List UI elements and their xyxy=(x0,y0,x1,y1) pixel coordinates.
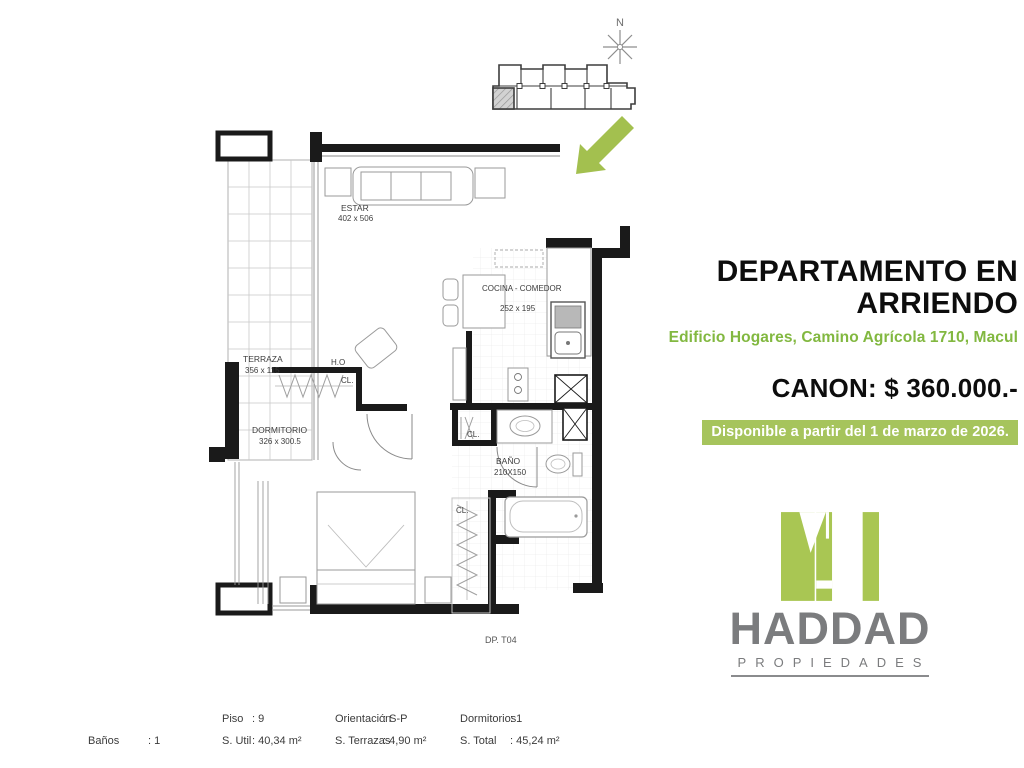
spec-banos-value: : 1 xyxy=(148,735,160,747)
room-dims-estar: 402 x 506 xyxy=(338,214,374,223)
spec-s-terrazas-label: S. Terrazas xyxy=(335,730,383,752)
spec-s-terrazas-value: : 4,90 m² xyxy=(383,735,426,747)
agency-name: HADDAD xyxy=(730,606,931,651)
room-label-terraza: TERRAZA xyxy=(243,354,283,364)
floorplan-drawing: ESTAR 402 x 506 TERRAZA 356 x 115 DORMIT… xyxy=(195,115,650,690)
logo-divider xyxy=(731,675,929,677)
agency-tagline: PROPIEDADES xyxy=(738,655,931,670)
spec-piso-label: Piso xyxy=(222,708,252,730)
spec-s-util-label: S. Util xyxy=(222,730,252,752)
chair xyxy=(443,305,458,326)
availability-badge: Disponible a partir del 1 de marzo de 20… xyxy=(702,420,1018,445)
spec-s-util-value: : 40,34 m² xyxy=(252,735,302,747)
bed xyxy=(280,492,451,604)
specs-column-2: Piso: 9 S. Util: 40,34 m² xyxy=(222,708,302,752)
spec-s-total-label: S. Total xyxy=(460,730,510,752)
label-closet-2: CL. xyxy=(467,430,479,439)
tv-cabinet xyxy=(453,348,466,400)
dining-table xyxy=(463,275,505,328)
spec-dormitorios-value: : 1 xyxy=(510,713,522,725)
label-ho: H.O xyxy=(331,358,345,367)
listing-price: CANON: $ 360.000.- xyxy=(598,373,1018,404)
spec-piso-value: : 9 xyxy=(252,713,264,725)
spec-s-total: S. Total: 45,24 m² xyxy=(460,730,560,752)
spec-s-terrazas: S. Terrazas: 4,90 m² xyxy=(335,730,426,752)
nightstand xyxy=(425,577,451,603)
label-closet-3: CL. xyxy=(456,506,468,515)
toilet xyxy=(546,455,570,473)
specs-column-1: Baños: 1 xyxy=(88,708,160,752)
room-label-cocina: COCINA - COMEDOR xyxy=(482,284,562,293)
terraza-deck xyxy=(228,160,318,460)
room-label-dormitorio: DORMITORIO xyxy=(252,425,307,435)
haddad-logo-icon xyxy=(781,512,879,602)
specs-column-3: Orientación: S-P S. Terrazas: 4,90 m² xyxy=(335,708,426,752)
spec-dormitorios: Dormitorios: 1 xyxy=(460,708,560,730)
room-dims-dormitorio: 326 x 300.5 xyxy=(259,437,301,446)
column-top-left xyxy=(218,133,270,159)
cooktop xyxy=(508,368,528,401)
sofa xyxy=(325,167,505,205)
spec-banos: Baños: 1 xyxy=(88,730,160,752)
compass-center xyxy=(617,44,622,49)
unit-number-label: DP. T04 xyxy=(485,635,517,645)
footprint-highlighted-unit xyxy=(493,88,514,109)
specs-column-4: Dormitorios: 1 S. Total: 45,24 m² xyxy=(460,708,560,752)
spec-dormitorios-label: Dormitorios xyxy=(460,708,510,730)
room-dims-terraza: 356 x 115 xyxy=(245,366,280,375)
agency-logo: HADDAD PROPIEDADES xyxy=(700,512,960,677)
listing-address: Edificio Hogares, Camino Agrícola 1710, … xyxy=(598,329,1018,347)
room-label-estar: ESTAR xyxy=(341,203,369,213)
spec-orientacion-label: Orientación xyxy=(335,708,383,730)
spec-s-util: S. Util: 40,34 m² xyxy=(222,730,302,752)
listing-title-line1: DEPARTAMENTO EN xyxy=(598,256,1018,288)
room-dims-bano: 210X150 xyxy=(494,468,527,477)
room-label-bano: BAÑO xyxy=(496,456,520,466)
spec-s-total-value: : 45,24 m² xyxy=(510,735,560,747)
building-footprint-diagram xyxy=(487,57,639,115)
spec-piso: Piso: 9 xyxy=(222,708,302,730)
spec-banos-label: Baños xyxy=(88,730,148,752)
chair xyxy=(443,279,458,300)
flyer-canvas: { "colors": { "accent_green": "#82b840",… xyxy=(0,0,1024,768)
listing-info: DEPARTAMENTO EN ARRIENDO Edificio Hogare… xyxy=(598,256,1018,445)
compass-north-label: N xyxy=(616,17,624,29)
armchair xyxy=(353,326,399,370)
spec-orientacion-value: : S-P xyxy=(383,713,407,725)
bath-basin xyxy=(510,416,540,436)
column-bottom-left xyxy=(218,585,270,613)
room-dims-cocina: 252 x 195 xyxy=(500,304,536,313)
label-closet-1: CL. xyxy=(341,376,353,385)
listing-title-line2: ARRIENDO xyxy=(598,288,1018,320)
nightstand xyxy=(280,577,306,603)
spec-orientacion: Orientación: S-P xyxy=(335,708,426,730)
